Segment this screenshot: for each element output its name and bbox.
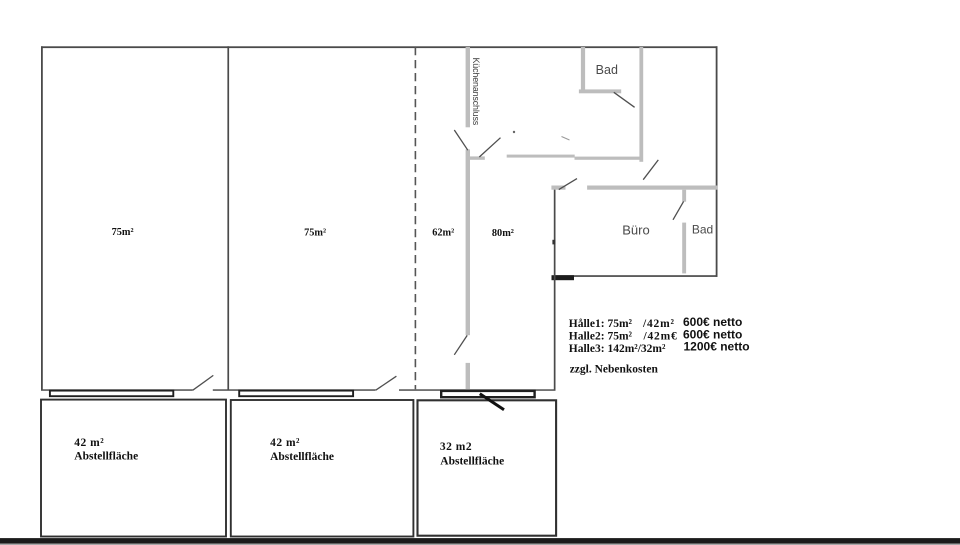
svg-text:Küchenanschluss: Küchenanschluss: [471, 58, 481, 126]
svg-text:42 m²: 42 m²: [270, 437, 300, 449]
svg-text:80m²: 80m²: [492, 228, 514, 239]
svg-text:/42m€: /42m€: [643, 331, 678, 343]
svg-text:Halle3: 142m²/32m²: Halle3: 142m²/32m²: [569, 343, 666, 355]
svg-text:Abstellfläche: Abstellfläche: [440, 456, 504, 468]
svg-text:Bad: Bad: [596, 63, 618, 77]
svg-text:75m²: 75m²: [304, 228, 326, 239]
svg-text:75m²: 75m²: [112, 227, 134, 238]
svg-text:62m²: 62m²: [432, 227, 454, 238]
svg-text:zzgl. Nebenkosten: zzgl. Nebenkosten: [570, 363, 659, 375]
svg-text:/42m²: /42m²: [642, 318, 675, 330]
svg-text:1200€ netto: 1200€ netto: [684, 340, 750, 354]
svg-text:Hålle1: 75m²: Hålle1: 75m²: [569, 318, 633, 330]
svg-text:Abstellfläche: Abstellfläche: [74, 451, 138, 463]
svg-text:32 m2: 32 m2: [440, 441, 472, 453]
svg-text:Halle2: 75m²: Halle2: 75m²: [569, 331, 633, 343]
svg-text:Büro: Büro: [622, 223, 649, 238]
svg-text:Bad: Bad: [692, 223, 713, 237]
svg-text:42 m²: 42 m²: [74, 437, 104, 449]
svg-text:Abstellfläche: Abstellfläche: [270, 451, 334, 463]
